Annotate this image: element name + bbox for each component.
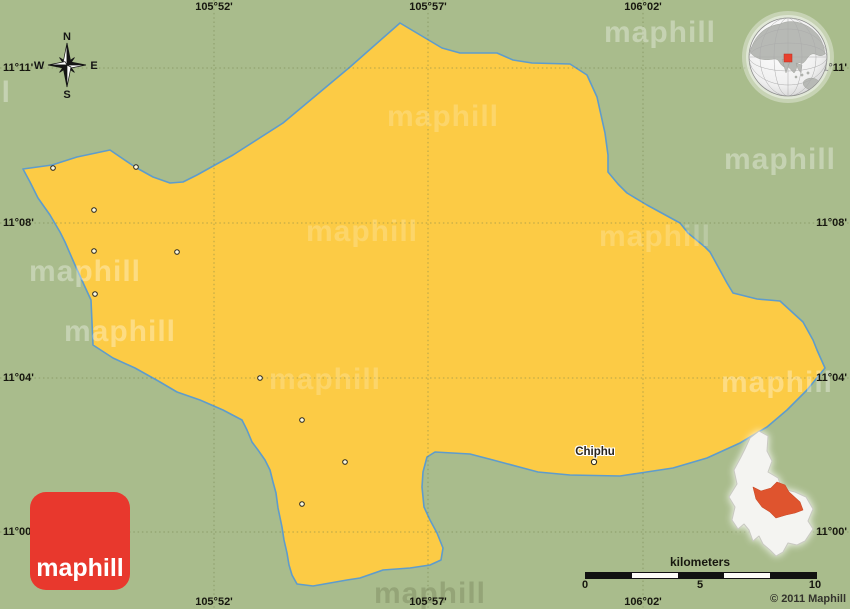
compass-label-e: E: [90, 60, 97, 72]
maphill-logo[interactable]: maphill: [30, 492, 130, 590]
watermark: maphill: [306, 215, 418, 249]
place-dot-chiphu: [591, 459, 596, 464]
copyright-notice: © 2011 Maphill: [770, 593, 846, 605]
town-dot: [343, 460, 348, 465]
watermark: maphill: [269, 363, 381, 397]
watermark: maphill: [374, 577, 486, 609]
maphill-logo-text: maphill: [30, 554, 130, 583]
watermark: maphill: [724, 143, 836, 177]
watermark: maphill: [64, 315, 176, 349]
compass-needle-west: [48, 65, 67, 68]
watermark: maphill: [721, 366, 833, 400]
compass-label-s: S: [63, 89, 70, 101]
town-dot: [300, 502, 305, 507]
town-dot: [92, 208, 97, 213]
scalebar-tick: 0: [582, 579, 588, 591]
scalebar-segment: [678, 573, 724, 578]
town-dot: [92, 249, 97, 254]
scalebar-segment: [770, 573, 816, 578]
scalebar-title: kilometers: [670, 555, 730, 569]
scalebar: [585, 572, 817, 579]
place-dots: [591, 459, 596, 464]
scalebar-tick: 5: [697, 579, 703, 591]
watermark: maphill: [599, 220, 711, 254]
scalebar-tick: 10: [809, 579, 821, 591]
globe-location-marker: [784, 54, 792, 62]
town-dot: [134, 165, 139, 170]
globe-locator: [740, 6, 836, 108]
town-dot: [93, 292, 98, 297]
scalebar-segment: [724, 573, 770, 578]
compass-rose: N E S W: [28, 24, 108, 108]
scalebar-segment: [632, 573, 678, 578]
watermark: maphill: [0, 76, 11, 110]
watermark: maphill: [604, 16, 716, 50]
town-dot: [175, 250, 180, 255]
compass-label-w: W: [34, 60, 45, 72]
compass-needle-west: [48, 62, 67, 65]
map-page: maphill maphill maphill maphill maphill …: [0, 0, 850, 609]
compass-label-n: N: [63, 31, 71, 43]
town-dot: [258, 376, 263, 381]
town-dot: [300, 418, 305, 423]
town-dot: [51, 166, 56, 171]
watermark: maphill: [387, 100, 499, 134]
compass-needle-east: [67, 62, 86, 65]
scalebar-segment: [586, 573, 632, 578]
watermark: maphill: [29, 255, 141, 289]
compass-needle-south: [67, 65, 71, 87]
